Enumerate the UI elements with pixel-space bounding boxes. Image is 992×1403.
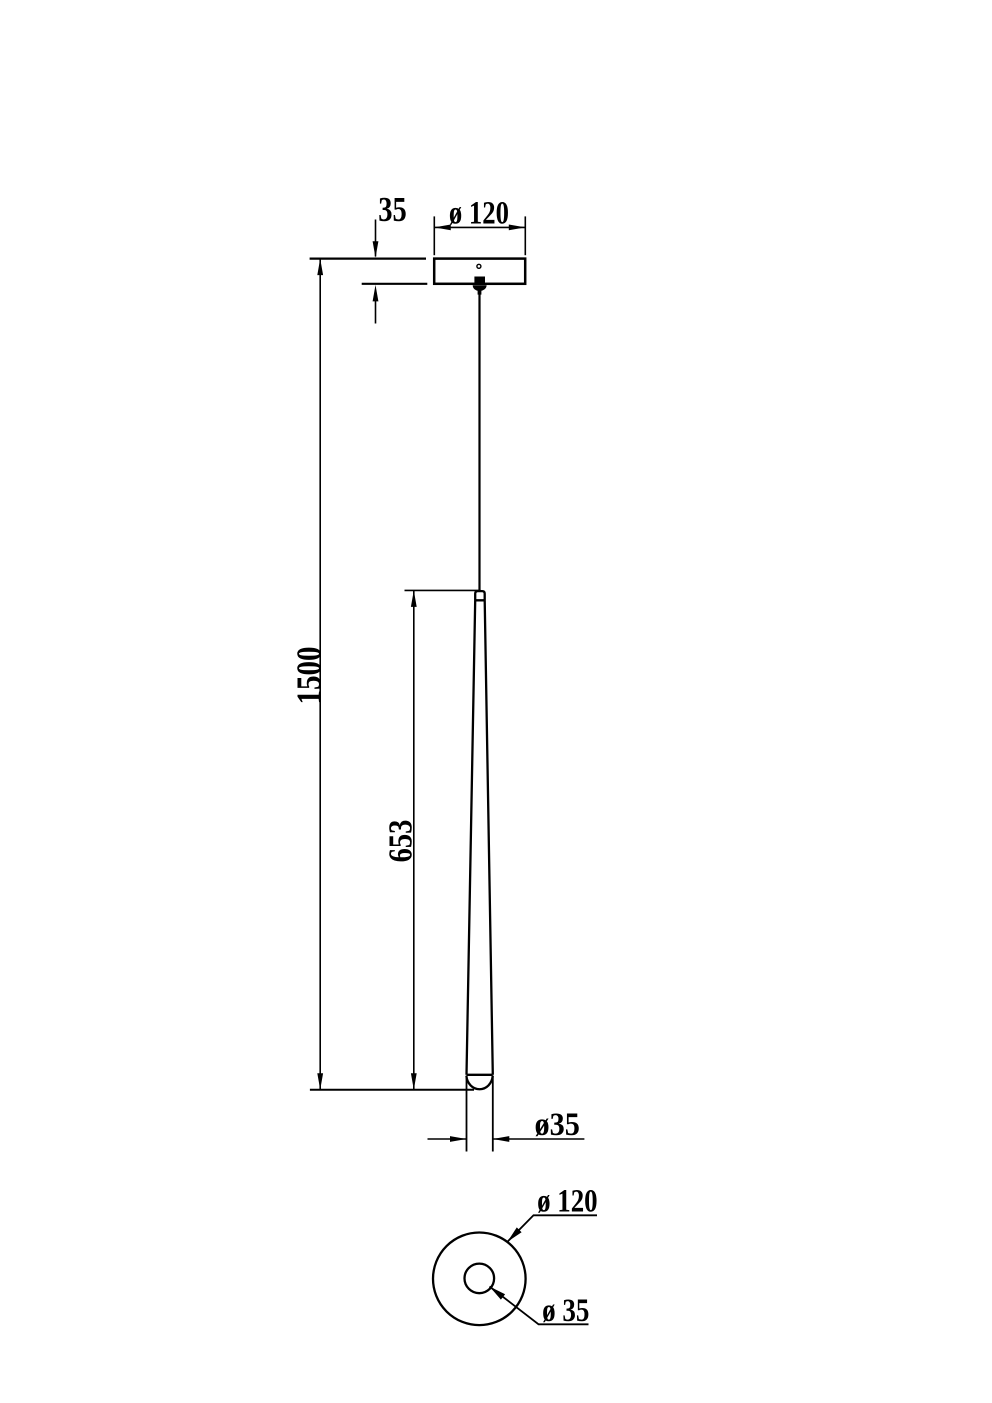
svg-text:653: 653 [382, 820, 419, 863]
svg-text:ø 120: ø 120 [449, 196, 509, 232]
svg-text:35: 35 [378, 191, 407, 229]
svg-text:1500: 1500 [290, 647, 328, 705]
svg-text:ø 35: ø 35 [542, 1293, 589, 1329]
svg-text:ø 120: ø 120 [537, 1183, 598, 1219]
svg-text:ø35: ø35 [535, 1107, 580, 1143]
